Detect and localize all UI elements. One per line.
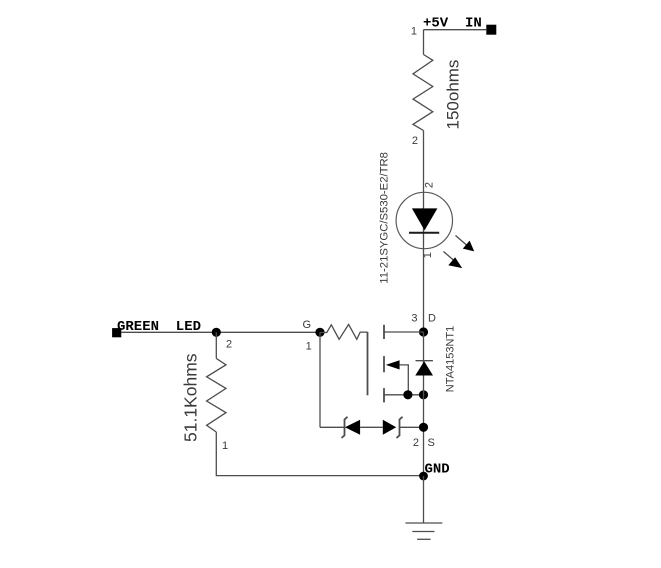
svg-text:S: S [428,437,435,449]
svg-text:2: 2 [413,437,419,449]
svg-text:2: 2 [412,135,418,147]
svg-text:11-21SYGC/S530-E2/TR8: 11-21SYGC/S530-E2/TR8 [379,152,391,284]
svg-text:150ohms: 150ohms [444,60,463,130]
svg-text:3: 3 [411,312,417,324]
svg-text:1: 1 [222,440,228,452]
svg-text:NTA4153NT1: NTA4153NT1 [445,326,457,392]
svg-text:51.1Kohms: 51.1Kohms [181,353,201,442]
svg-text:2: 2 [226,339,232,351]
svg-text:G: G [302,319,311,331]
svg-text:GND: GND [425,461,450,477]
svg-text:1: 1 [422,252,434,258]
svg-text:1: 1 [306,341,312,353]
svg-text:1: 1 [411,25,417,37]
svg-text:D: D [428,313,436,325]
svg-text:2: 2 [423,182,435,188]
